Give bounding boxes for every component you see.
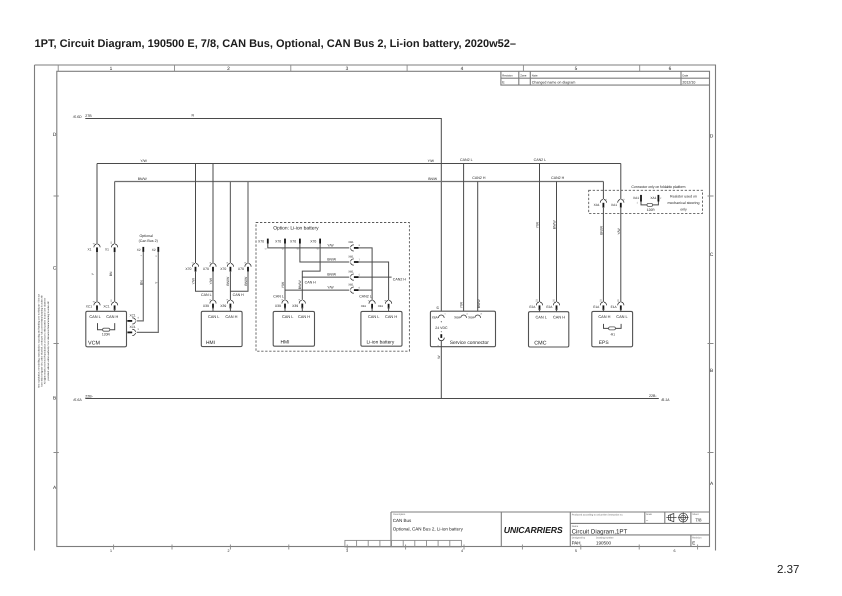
svg-text:1: 1 xyxy=(110,549,112,553)
svg-text:14: 14 xyxy=(110,241,113,244)
svg-text:XA1: XA1 xyxy=(633,196,639,200)
svg-text:22B-: 22B- xyxy=(649,394,657,398)
svg-text:Designed by: Designed by xyxy=(572,537,586,540)
svg-text:3: 3 xyxy=(346,549,348,553)
svg-text:Scale: Scale xyxy=(646,513,653,516)
svg-text:24 VDC: 24 VDC xyxy=(435,326,448,330)
svg-text:Y/W: Y/W xyxy=(191,277,195,284)
svg-text:XC1: XC1 xyxy=(86,305,92,309)
svg-text:Y/W: Y/W xyxy=(327,243,334,247)
svg-text:Note: Note xyxy=(532,75,538,78)
svg-text:3: 3 xyxy=(226,298,229,300)
svg-text:UNICARRIERS: UNICARRIERS xyxy=(504,525,563,535)
svg-text:6: 6 xyxy=(93,300,96,302)
svg-text:PAH: PAH xyxy=(572,541,581,546)
svg-text:3: 3 xyxy=(298,298,301,300)
svg-text:Description: Description xyxy=(393,513,406,516)
svg-text:X39: X39 xyxy=(292,304,298,308)
svg-text:X39: X39 xyxy=(220,304,226,308)
svg-text:CAN H: CAN H xyxy=(385,314,397,319)
svg-text:BN/W: BN/W xyxy=(428,177,438,181)
svg-text:CAN2 L: CAN2 L xyxy=(534,158,547,162)
svg-text:VCM: VCM xyxy=(88,340,100,346)
svg-text:Y/W: Y/W xyxy=(140,159,147,163)
svg-text:C: C xyxy=(53,266,57,272)
svg-text:BN/W: BN/W xyxy=(327,273,337,277)
svg-text:CAN L: CAN L xyxy=(535,314,547,319)
svg-text:XA1: XA1 xyxy=(594,203,600,207)
svg-text:BN/W: BN/W xyxy=(327,258,337,262)
svg-text:2: 2 xyxy=(209,298,212,300)
svg-text:2: 2 xyxy=(281,298,284,300)
svg-text:XC1: XC1 xyxy=(130,314,136,318)
svg-text:XB1: XB1 xyxy=(348,269,354,273)
svg-text:5: 5 xyxy=(575,549,577,553)
svg-text:Sheet: Sheet xyxy=(692,513,699,516)
svg-text:Produced according to unicarri: Produced according to unicarriers instru… xyxy=(572,513,624,516)
svg-text:D: D xyxy=(710,134,714,140)
svg-text:E2A: E2A xyxy=(546,305,553,309)
svg-text:E1A: E1A xyxy=(593,305,600,309)
svg-text:Circuit Diagram,1PT: Circuit Diagram,1PT xyxy=(572,529,628,536)
svg-text:XB1: XB1 xyxy=(378,304,384,308)
svg-text:XB1: XB1 xyxy=(348,254,354,258)
svg-text:X70: X70 xyxy=(220,267,226,271)
svg-text:Option: Li-ion battery: Option: Li-ion battery xyxy=(273,225,319,231)
svg-text:Resistor used on: Resistor used on xyxy=(670,195,697,199)
svg-text:CAN2 H: CAN2 H xyxy=(551,176,565,180)
svg-text:W: W xyxy=(437,355,441,359)
svg-text:Drawing number: Drawing number xyxy=(596,537,614,540)
svg-text:4: 4 xyxy=(461,549,463,553)
svg-text:XC1: XC1 xyxy=(103,305,109,309)
svg-text:2: 2 xyxy=(660,197,662,200)
svg-text:BN/W: BN/W xyxy=(599,225,603,235)
svg-text:CAN L: CAN L xyxy=(208,314,220,319)
svg-text:5: 5 xyxy=(359,273,361,276)
svg-text:BN/W: BN/W xyxy=(477,299,481,309)
svg-text:22: 22 xyxy=(617,299,620,302)
svg-text:Changed name on diagram: Changed name on diagram xyxy=(532,81,576,85)
svg-text:14: 14 xyxy=(110,299,113,302)
svg-text:2: 2 xyxy=(623,198,626,200)
svg-text:CAN H: CAN H xyxy=(106,314,118,319)
svg-text:R: R xyxy=(436,306,440,309)
svg-text:1: 1 xyxy=(605,198,608,200)
svg-text:120R: 120R xyxy=(102,333,111,337)
svg-text:All rights strictly reserved.: All rights strictly reserved. Reproducti… xyxy=(44,298,47,385)
svg-text:C: C xyxy=(710,252,714,258)
svg-text:1: 1 xyxy=(140,254,143,256)
svg-text:CAN2 H: CAN2 H xyxy=(472,176,486,180)
svg-text:4: 4 xyxy=(461,66,464,72)
svg-text:2: 2 xyxy=(227,66,230,72)
svg-text:HMI: HMI xyxy=(206,340,215,346)
svg-text:X70: X70 xyxy=(203,267,209,271)
svg-text:mechanical steering: mechanical steering xyxy=(668,201,700,205)
svg-text:Revision: Revision xyxy=(502,75,513,78)
svg-text:3: 3 xyxy=(384,299,387,301)
svg-text:A: A xyxy=(710,481,714,487)
svg-text:X39: X39 xyxy=(203,304,209,308)
svg-text:Y: Y xyxy=(91,272,95,275)
svg-text:23: 23 xyxy=(536,299,539,302)
svg-text:9: 9 xyxy=(244,261,247,263)
svg-text:CAN H: CAN H xyxy=(298,314,310,319)
svg-text:E2A: E2A xyxy=(529,305,536,309)
svg-text:8: 8 xyxy=(226,261,229,263)
svg-text:7: 7 xyxy=(359,258,361,261)
svg-text:120R: 120R xyxy=(647,208,656,212)
svg-text:X2: X2 xyxy=(137,248,141,252)
svg-text:B: B xyxy=(710,368,713,374)
svg-text:8: 8 xyxy=(359,244,361,247)
svg-text:X70: X70 xyxy=(275,239,281,243)
svg-text:R: R xyxy=(192,114,195,118)
svg-text:8: 8 xyxy=(138,317,140,320)
svg-text:1PT, Circuit Diagram, 190500 E: 1PT, Circuit Diagram, 190500 E, 7/8, CAN… xyxy=(35,38,517,50)
svg-text:Optional: Optional xyxy=(140,234,154,238)
svg-text:X70: X70 xyxy=(290,239,296,243)
svg-text:Y/W: Y/W xyxy=(617,228,621,235)
svg-text:Revision: Revision xyxy=(692,537,702,540)
svg-text:XB1: XB1 xyxy=(361,304,367,308)
svg-text:2.37: 2.37 xyxy=(777,564,799,576)
svg-text:BN/W: BN/W xyxy=(244,276,248,286)
svg-text:6: 6 xyxy=(209,261,212,263)
svg-text:X1: X1 xyxy=(105,248,109,252)
svg-text:Y/W: Y/W xyxy=(428,159,435,163)
svg-text:BN/W: BN/W xyxy=(138,177,148,181)
svg-text:Y/W: Y/W xyxy=(209,277,213,284)
svg-text:BN: BN xyxy=(109,271,113,276)
svg-text:9: 9 xyxy=(138,328,140,331)
svg-text:XB1: XB1 xyxy=(348,282,354,286)
svg-text:1: 1 xyxy=(110,66,113,72)
svg-text:3: 3 xyxy=(346,66,349,72)
svg-text:CAN L: CAN L xyxy=(273,294,284,298)
svg-text:CAN2 L: CAN2 L xyxy=(359,295,372,299)
svg-text:X70: X70 xyxy=(310,239,316,243)
svg-text:(Can Bus 2): (Can Bus 2) xyxy=(139,239,158,243)
svg-text:X6A: X6A xyxy=(432,316,439,320)
svg-text:permitted without written auth: permitted without written authority from… xyxy=(47,301,50,380)
svg-text:Li-ion battery: Li-ion battery xyxy=(367,340,395,346)
svg-text:CAN L: CAN L xyxy=(368,314,380,319)
svg-text:CAN H: CAN H xyxy=(233,293,245,297)
svg-text:CAN H: CAN H xyxy=(598,314,610,319)
svg-text:/8.1A: /8.1A xyxy=(660,398,670,402)
svg-text:XA1: XA1 xyxy=(611,203,617,207)
svg-text:5: 5 xyxy=(264,248,267,250)
svg-text:/6.6A: /6.6A xyxy=(72,398,82,402)
svg-text:BN/W: BN/W xyxy=(226,276,230,286)
svg-text:X70: X70 xyxy=(185,267,191,271)
svg-text:EPS: EPS xyxy=(599,340,610,346)
svg-text:Service connector: Service connector xyxy=(450,340,490,346)
svg-text:X6A: X6A xyxy=(454,316,461,320)
svg-text:CAN L: CAN L xyxy=(616,314,628,319)
svg-text:6: 6 xyxy=(359,286,361,289)
svg-text:2012/10: 2012/10 xyxy=(682,81,695,85)
svg-text:Any exploitation, remodelling,: Any exploitation, remodelling, reproduct… xyxy=(38,294,41,388)
svg-text:X70: X70 xyxy=(258,239,264,243)
svg-text:Date: Date xyxy=(682,75,688,78)
svg-text:22B-: 22B- xyxy=(85,394,93,398)
svg-text:Connector only on foldable pla: Connector only on foldable platform xyxy=(631,185,685,189)
svg-text:7/8: 7/8 xyxy=(695,518,702,523)
svg-text:B: B xyxy=(53,396,56,402)
svg-text:XB1: XB1 xyxy=(348,240,354,244)
svg-text:X39: X39 xyxy=(275,304,281,308)
svg-text:–: – xyxy=(646,519,649,523)
svg-text:2: 2 xyxy=(228,549,230,553)
svg-text:27B: 27B xyxy=(85,114,92,118)
svg-text:HMI: HMI xyxy=(281,340,290,346)
svg-text:Optional, CAN Bus 2, Li-ion ba: Optional, CAN Bus 2, Li-ion battery xyxy=(393,527,464,532)
svg-text:BN/W: BN/W xyxy=(298,280,302,290)
svg-text:BN/W: BN/W xyxy=(552,220,556,230)
svg-text:Y/W: Y/W xyxy=(460,301,464,308)
svg-text:CAN L: CAN L xyxy=(89,314,101,319)
svg-text:X2: X2 xyxy=(152,248,156,252)
svg-text:CAN L: CAN L xyxy=(201,293,212,297)
svg-text:6: 6 xyxy=(674,549,676,553)
svg-text:25: 25 xyxy=(553,299,556,302)
svg-text:CMC: CMC xyxy=(534,341,546,347)
svg-text:have third emigrate view other: have third emigrate view other shortfall… xyxy=(41,295,44,386)
svg-text:CAN2 L: CAN2 L xyxy=(460,158,473,162)
svg-text:Y/W: Y/W xyxy=(281,281,285,288)
svg-text:Zone: Zone xyxy=(520,75,527,78)
svg-text:1: 1 xyxy=(637,201,639,204)
svg-text:D: D xyxy=(53,132,57,138)
svg-text:X6A: X6A xyxy=(468,316,475,320)
svg-text:CAN H: CAN H xyxy=(553,314,565,319)
svg-text:2: 2 xyxy=(155,255,158,257)
svg-text:XC1: XC1 xyxy=(130,325,136,329)
svg-text:E: E xyxy=(502,81,505,85)
svg-text:CAN L: CAN L xyxy=(282,314,294,319)
svg-text:BN: BN xyxy=(140,280,144,285)
svg-text:XA1: XA1 xyxy=(650,196,656,200)
svg-text:Y/W: Y/W xyxy=(535,221,539,228)
svg-text:/6.6D: /6.6D xyxy=(72,115,82,119)
svg-text:6: 6 xyxy=(669,66,672,72)
svg-text:CAN H: CAN H xyxy=(225,314,237,319)
svg-text:CAN2 H: CAN2 H xyxy=(393,277,407,281)
svg-text:5: 5 xyxy=(575,66,578,72)
svg-text:E: E xyxy=(692,541,695,546)
svg-text:CAN H: CAN H xyxy=(305,281,317,285)
svg-text:23: 23 xyxy=(599,299,602,302)
svg-text:only: only xyxy=(680,208,687,212)
svg-text:CAN Bus: CAN Bus xyxy=(393,518,412,523)
svg-text:Y/W: Y/W xyxy=(327,286,334,290)
svg-text:E1A: E1A xyxy=(611,305,618,309)
svg-text:5: 5 xyxy=(191,261,194,263)
svg-text:6: 6 xyxy=(93,242,96,244)
svg-text:-R1: -R1 xyxy=(610,332,615,336)
svg-text:X1: X1 xyxy=(87,248,91,252)
svg-text:X70: X70 xyxy=(238,267,244,271)
svg-text:190500: 190500 xyxy=(596,541,612,546)
svg-text:4: 4 xyxy=(368,299,371,301)
